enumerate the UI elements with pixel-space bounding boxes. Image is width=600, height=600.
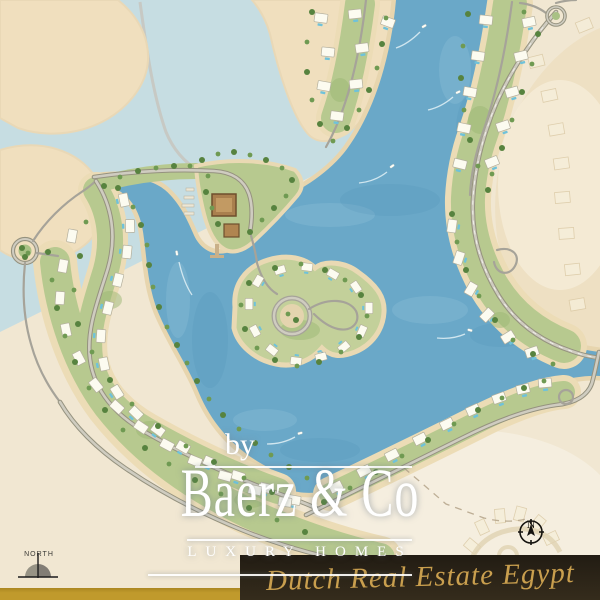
north-arrow-icon: [12, 551, 64, 581]
watermark-tagline: LUXURY HOMES: [150, 544, 450, 561]
watermark-brand: Baerz & Co: [119, 455, 480, 533]
watermark-divider-middle: [187, 539, 412, 541]
watermark-divider-bottom: [148, 574, 412, 576]
compass-icon: [511, 518, 551, 548]
marina-building: [224, 224, 239, 237]
north-marker: NORTH: [12, 551, 66, 558]
site-plan-image: by Baerz & Co LUXURY HOMES Dutch Real Es…: [0, 0, 600, 600]
compass: N: [511, 518, 551, 530]
agency-banner-text: Dutch Real Estate Egypt: [265, 557, 575, 598]
gold-bar: [0, 588, 240, 600]
agency-banner: Dutch Real Estate Egypt: [240, 555, 600, 600]
